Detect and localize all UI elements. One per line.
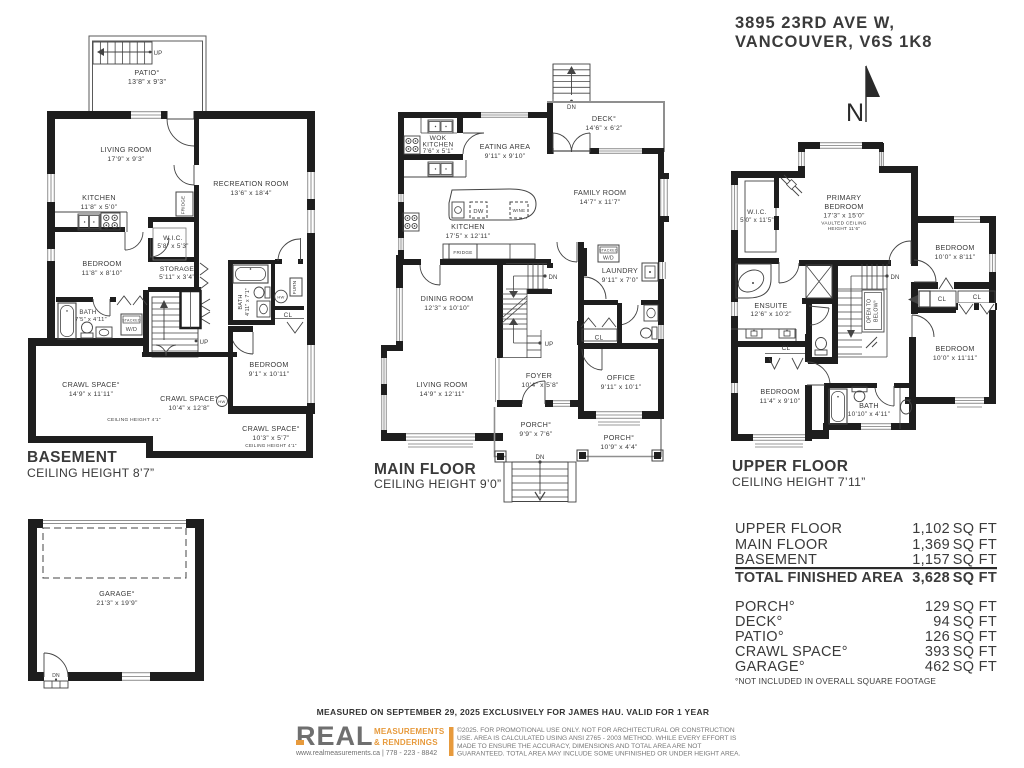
svg-text:11’8” x 5’0”: 11’8” x 5’0” [81,204,118,211]
svg-text:5’0” x 11’5”: 5’0” x 11’5” [740,217,774,224]
svg-text:17’9” x 9’3”: 17’9” x 9’3” [107,156,145,163]
svg-text:9’11” x 10’1”: 9’11” x 10’1” [601,384,642,391]
svg-text:129: 129 [925,599,950,615]
svg-text:KITCHEN: KITCHEN [82,193,116,202]
svg-text:CRAWL SPACE°: CRAWL SPACE° [242,424,300,433]
svg-text:CEILING HEIGHT 4’1”: CEILING HEIGHT 4’1” [245,443,297,448]
svg-text:5’11” x 3’4”: 5’11” x 3’4” [159,274,195,281]
svg-text:GUARANTEED. TOTAL AREA MAY INC: GUARANTEED. TOTAL AREA MAY INCLUDE SOME … [457,751,741,758]
svg-text:UPPER FLOOR: UPPER FLOOR [735,521,842,537]
svg-text:VANCOUVER, V6S 1K8: VANCOUVER, V6S 1K8 [735,33,932,51]
svg-text:BASEMENT: BASEMENT [735,552,817,568]
svg-text:PATIO°: PATIO° [735,629,784,645]
svg-text:CEILING HEIGHT 4’1”: CEILING HEIGHT 4’1” [107,417,161,423]
svg-text:STACKED: STACKED [599,249,618,253]
svg-text:PORCH°: PORCH° [521,420,552,429]
svg-text:7’5” x 4’11”: 7’5” x 4’11” [75,317,107,323]
svg-text:FRIDGE: FRIDGE [181,196,186,215]
svg-text:SQ FT: SQ FT [953,614,997,630]
svg-text:11’8” x 8’10”: 11’8” x 8’10” [82,270,123,277]
svg-text:FOYER: FOYER [526,371,552,380]
svg-text:KITCHEN: KITCHEN [451,222,485,231]
svg-text:CL: CL [595,335,604,342]
svg-text:DN: DN [890,275,899,281]
svg-text:17’5” x 12’11”: 17’5” x 12’11” [446,233,491,240]
svg-text:BATH: BATH [79,309,96,316]
svg-text:REAL: REAL [296,721,374,751]
svg-text:14’6” x 6’2”: 14’6” x 6’2” [585,125,623,132]
svg-text:CL: CL [938,296,947,303]
svg-text:FRIDGE: FRIDGE [453,250,472,255]
svg-text:SQ FT: SQ FT [953,570,997,586]
svg-text:& RENDERINGS: & RENDERINGS [374,738,438,747]
svg-text:HW: HW [277,295,284,300]
svg-text:LAUNDRY: LAUNDRY [602,266,638,275]
svg-text:FURN: FURN [292,281,297,295]
svg-text:393: 393 [925,644,950,660]
svg-text:BEDROOM: BEDROOM [824,202,863,211]
svg-text:DN: DN [52,673,60,679]
svg-text:3,628: 3,628 [912,570,950,586]
svg-text:1,157: 1,157 [912,552,950,568]
svg-text:PORCH°: PORCH° [604,433,635,442]
svg-text:DW: DW [473,209,483,215]
svg-text:°NOT INCLUDED IN OVERALL SQUAR: °NOT INCLUDED IN OVERALL SQUARE FOOTAGE [735,677,936,686]
svg-text:PORCH°: PORCH° [735,599,795,615]
svg-text:12’3” x 10’10”: 12’3” x 10’10” [424,305,470,312]
svg-text:10’9” x 4’4”: 10’9” x 4’4” [600,444,638,451]
svg-text:10’4” x 12’8”: 10’4” x 12’8” [168,405,210,412]
svg-text:MEASUREMENTS: MEASUREMENTS [374,727,445,736]
svg-text:DINING ROOM: DINING ROOM [421,294,474,303]
svg-text:www.realmeasurements.ca | 778: www.realmeasurements.ca | 778 - 223 - 88… [295,750,437,757]
svg-text:ENSUITE: ENSUITE [754,301,787,310]
svg-text:©2025. FOR PROMOTIONAL USE ONL: ©2025. FOR PROMOTIONAL USE ONLY. NOT FOR… [457,726,735,734]
svg-text:DECK°: DECK° [735,614,783,630]
svg-text:BEDROOM: BEDROOM [935,344,974,353]
svg-text:SQ FT: SQ FT [953,644,997,660]
svg-text:10’4” x 5’8”: 10’4” x 5’8” [521,382,559,389]
svg-text:OPEN TO: OPEN TO [867,299,873,324]
svg-text:W.I.C.: W.I.C. [747,209,767,216]
svg-text:3895 23RD AVE W,: 3895 23RD AVE W, [735,14,895,32]
svg-text:5’8” x 5’3”: 5’8” x 5’3” [157,243,188,250]
svg-text:BATH: BATH [238,294,244,309]
svg-text:USE. AREA IS CALCULATED USING: USE. AREA IS CALCULATED USING ANSI Z765 … [457,735,737,742]
svg-text:17’3” x 15’0”: 17’3” x 15’0” [823,213,865,220]
svg-text:PATIO°: PATIO° [134,68,159,77]
svg-text:CL: CL [284,312,293,319]
svg-text:MEASURED ON SEPTEMBER 29, 2025: MEASURED ON SEPTEMBER 29, 2025 EXCLUSIVE… [317,707,710,717]
svg-text:GARAGE°: GARAGE° [735,659,805,675]
svg-text:MAIN FLOOR: MAIN FLOOR [735,537,828,553]
svg-text:12’6” x 10’2”: 12’6” x 10’2” [750,311,792,318]
svg-text:W.I.C.: W.I.C. [163,235,183,242]
svg-text:FAMILY ROOM: FAMILY ROOM [574,188,627,197]
svg-text:HW: HW [218,399,225,404]
svg-text:STACKED: STACKED [122,319,141,323]
svg-text:MAIN FLOOR: MAIN FLOOR [374,461,476,478]
svg-text:SQ FT: SQ FT [953,552,997,568]
svg-text:RECREATION ROOM: RECREATION ROOM [213,179,288,188]
svg-text:HEIGHT 11’6”: HEIGHT 11’6” [828,226,861,231]
svg-text:10’0” x 11’11”: 10’0” x 11’11” [933,355,978,362]
svg-text:10’3” x 5’7”: 10’3” x 5’7” [252,435,290,442]
svg-text:DECK°: DECK° [592,114,616,123]
svg-text:DN: DN [535,455,544,461]
svg-text:9’11” x 7’0”: 9’11” x 7’0” [602,277,639,284]
svg-text:MADE TO ENSURE THE ACCURAC: MADE TO ENSURE THE ACCURACY, DIMENSIONS … [457,743,701,750]
svg-text:9’11” x 9’10”: 9’11” x 9’10” [485,153,526,160]
svg-text:BEDROOM: BEDROOM [935,243,974,252]
svg-text:SQ FT: SQ FT [953,521,997,537]
svg-text:11’4” x 9’10”: 11’4” x 9’10” [760,398,801,405]
svg-text:BEDROOM: BEDROOM [82,259,121,268]
svg-text:GARAGE°: GARAGE° [99,589,135,598]
svg-text:4’11” x 7’1”: 4’11” x 7’1” [245,288,251,316]
svg-text:DN: DN [567,105,576,111]
svg-text:126: 126 [925,629,950,645]
svg-text:21’3” x 19’9”: 21’3” x 19’9” [96,600,138,607]
svg-text:DN: DN [548,275,557,281]
svg-text:CEILING HEIGHT 8’7”: CEILING HEIGHT 8’7” [27,466,154,480]
svg-text:CRAWL SPACE°: CRAWL SPACE° [735,644,848,660]
svg-text:LIVING ROOM: LIVING ROOM [100,145,151,154]
svg-text:WINE: WINE [513,208,526,213]
svg-text:CEILING HEIGHT 7’11”: CEILING HEIGHT 7’11” [732,475,866,489]
svg-text:10’10” x 4’11”: 10’10” x 4’11” [848,411,890,418]
svg-text:1,102: 1,102 [912,521,950,537]
svg-text:13’8” x 9’3”: 13’8” x 9’3” [128,79,167,86]
svg-text:CL: CL [782,345,791,352]
svg-text:94: 94 [933,614,950,630]
svg-text:9’9” x 7’6”: 9’9” x 7’6” [519,431,553,438]
svg-text:OFFICE: OFFICE [607,373,635,382]
svg-text:UPPER FLOOR: UPPER FLOOR [732,458,848,475]
svg-text:CL: CL [973,294,982,301]
svg-text:SQ FT: SQ FT [953,599,997,615]
svg-text:CRAWL SPACE°: CRAWL SPACE° [62,380,120,389]
svg-text:14’9” x 12’11”: 14’9” x 12’11” [420,391,465,398]
svg-text:UP: UP [200,340,209,346]
svg-text:BEDROOM: BEDROOM [760,387,799,396]
svg-text:BATH: BATH [859,401,879,410]
svg-text:UP: UP [545,342,554,348]
svg-text:9’1” x 10’11”: 9’1” x 10’11” [249,371,290,378]
svg-text:10’0” x 8’11”: 10’0” x 8’11” [935,254,976,261]
svg-text:SQ FT: SQ FT [953,659,997,675]
svg-text:W/D: W/D [603,256,614,262]
svg-text:PRIMARY: PRIMARY [827,193,862,202]
svg-text:VAULTED CEILING: VAULTED CEILING [821,221,867,226]
svg-text:SQ FT: SQ FT [953,629,997,645]
svg-text:BELOW°: BELOW° [874,300,880,322]
svg-text:1,369: 1,369 [912,537,950,553]
svg-text:13’6” x 18’4”: 13’6” x 18’4” [230,190,272,197]
svg-text:N: N [846,99,864,127]
svg-text:14’9” x 11’11”: 14’9” x 11’11” [69,391,114,398]
svg-text:7’6” x 5’1”: 7’6” x 5’1” [423,148,453,155]
svg-text:CRAWL SPACE°: CRAWL SPACE° [160,394,218,403]
svg-text:462: 462 [925,659,950,675]
svg-text:W/D: W/D [126,327,137,333]
svg-text:UP: UP [154,51,163,57]
svg-text:STORAGE: STORAGE [160,266,195,273]
svg-text:CEILING HEIGHT 9’0”: CEILING HEIGHT 9’0” [374,477,501,491]
svg-text:BASEMENT: BASEMENT [27,449,117,466]
svg-text:EATING AREA: EATING AREA [480,142,531,151]
svg-text:BEDROOM: BEDROOM [249,360,288,369]
svg-text:LIVING ROOM: LIVING ROOM [416,380,467,389]
svg-text:14’7” x 11’7”: 14’7” x 11’7” [580,199,621,206]
svg-text:TOTAL FINISHED AREA: TOTAL FINISHED AREA [735,570,904,586]
svg-text:SQ FT: SQ FT [953,537,997,553]
